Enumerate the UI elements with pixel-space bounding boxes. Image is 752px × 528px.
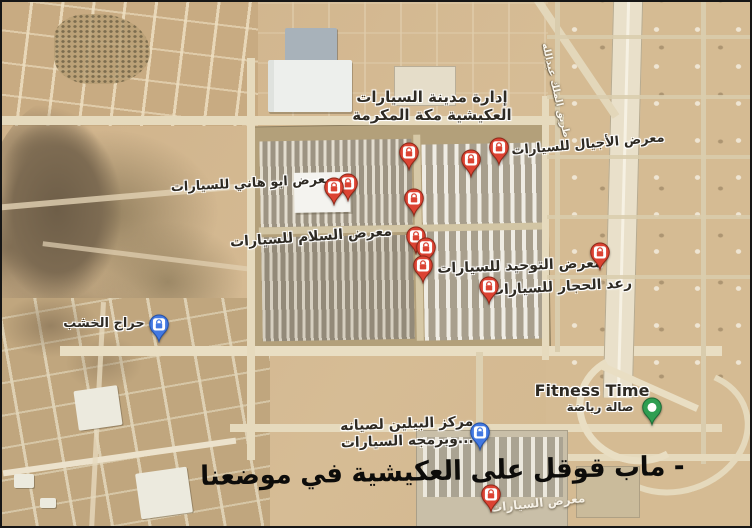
- place-pin-icon: [641, 397, 663, 426]
- road-vertical: [247, 58, 255, 460]
- label-car-city-admin[interactable]: إدارة مدينة السياراتالعكيشية مكة المكرمة: [352, 89, 511, 124]
- small-building: [40, 498, 56, 508]
- shopping-bag-pin-icon: [148, 314, 170, 343]
- white-compound: [268, 60, 352, 112]
- shopping-bag-pin-icon: [480, 484, 502, 513]
- shopping-bag-pin-icon: [460, 149, 482, 178]
- watermark-word: موضعنا: [200, 459, 292, 492]
- shopping-bag-pin-icon: [403, 188, 425, 217]
- watermark-word: على: [470, 454, 525, 486]
- shopping-bag-pin-icon: [469, 422, 491, 451]
- watermark-word: في: [300, 458, 343, 490]
- map-label-line: العكيشية مكة المكرمة: [352, 107, 511, 125]
- street: [555, 2, 560, 352]
- pin-kharaj-khashab[interactable]: [148, 314, 170, 343]
- watermark-word: -: [674, 451, 685, 482]
- pin-raad-hajjar[interactable]: [478, 276, 500, 305]
- watermark-word: قوقل: [533, 453, 606, 486]
- white-compound: [73, 385, 122, 431]
- pin-car-city-admin[interactable]: [398, 142, 420, 171]
- pin-showroom-4[interactable]: [403, 188, 425, 217]
- watermark-word: ماب: [614, 451, 666, 483]
- bluegray-building: [285, 28, 337, 62]
- warehouse-rows: [421, 143, 544, 341]
- label-bailin[interactable]: مركز البيلين لصيانهوبرمجه السيارات...: [340, 414, 474, 452]
- pin-bailin-center[interactable]: [469, 422, 491, 451]
- pin-showroom-2[interactable]: [460, 149, 482, 178]
- street: [547, 95, 752, 99]
- pin-cluster-low[interactable]: [412, 255, 434, 284]
- label-fitness-time-ar[interactable]: صالة رياضة: [567, 400, 634, 414]
- street: [547, 155, 752, 159]
- warehouse-rows: [261, 235, 415, 342]
- street: [547, 35, 752, 39]
- map-label-line: إدارة مدينة السيارات: [352, 89, 511, 107]
- satellite-map[interactable]: طريق الملك عبدالله إدارة مدينة السياراتا…: [0, 0, 752, 528]
- shopping-bag-pin-icon: [589, 242, 611, 271]
- shopping-bag-pin-icon: [412, 255, 434, 284]
- pin-fitness-time[interactable]: [641, 397, 663, 426]
- white-compound: [135, 467, 193, 520]
- label-kharaj-khashab[interactable]: حراج الخشب: [63, 316, 145, 331]
- pin-abu-hani-1[interactable]: [323, 177, 345, 206]
- shopping-bag-pin-icon: [488, 137, 510, 166]
- street: [547, 215, 752, 219]
- shopping-bag-pin-icon: [323, 177, 345, 206]
- pin-hidden-showroom[interactable]: [480, 484, 502, 513]
- small-building: [14, 474, 34, 488]
- pin-ajyal-showroom[interactable]: [488, 137, 510, 166]
- shopping-bag-pin-icon: [398, 142, 420, 171]
- map-label-line: Fitness Time: [535, 382, 650, 401]
- watermark-word: العكيشية: [351, 456, 462, 489]
- pin-tawhid-showroom[interactable]: [589, 242, 611, 271]
- road-vertical: [542, 96, 549, 360]
- shopping-bag-pin-icon: [478, 276, 500, 305]
- label-fitness-time[interactable]: Fitness Time: [535, 382, 650, 401]
- terrain-bottomleft-grid: [2, 298, 270, 528]
- map-label-line: صالة رياضة: [567, 400, 634, 414]
- map-label-line: حراج الخشب: [63, 316, 145, 331]
